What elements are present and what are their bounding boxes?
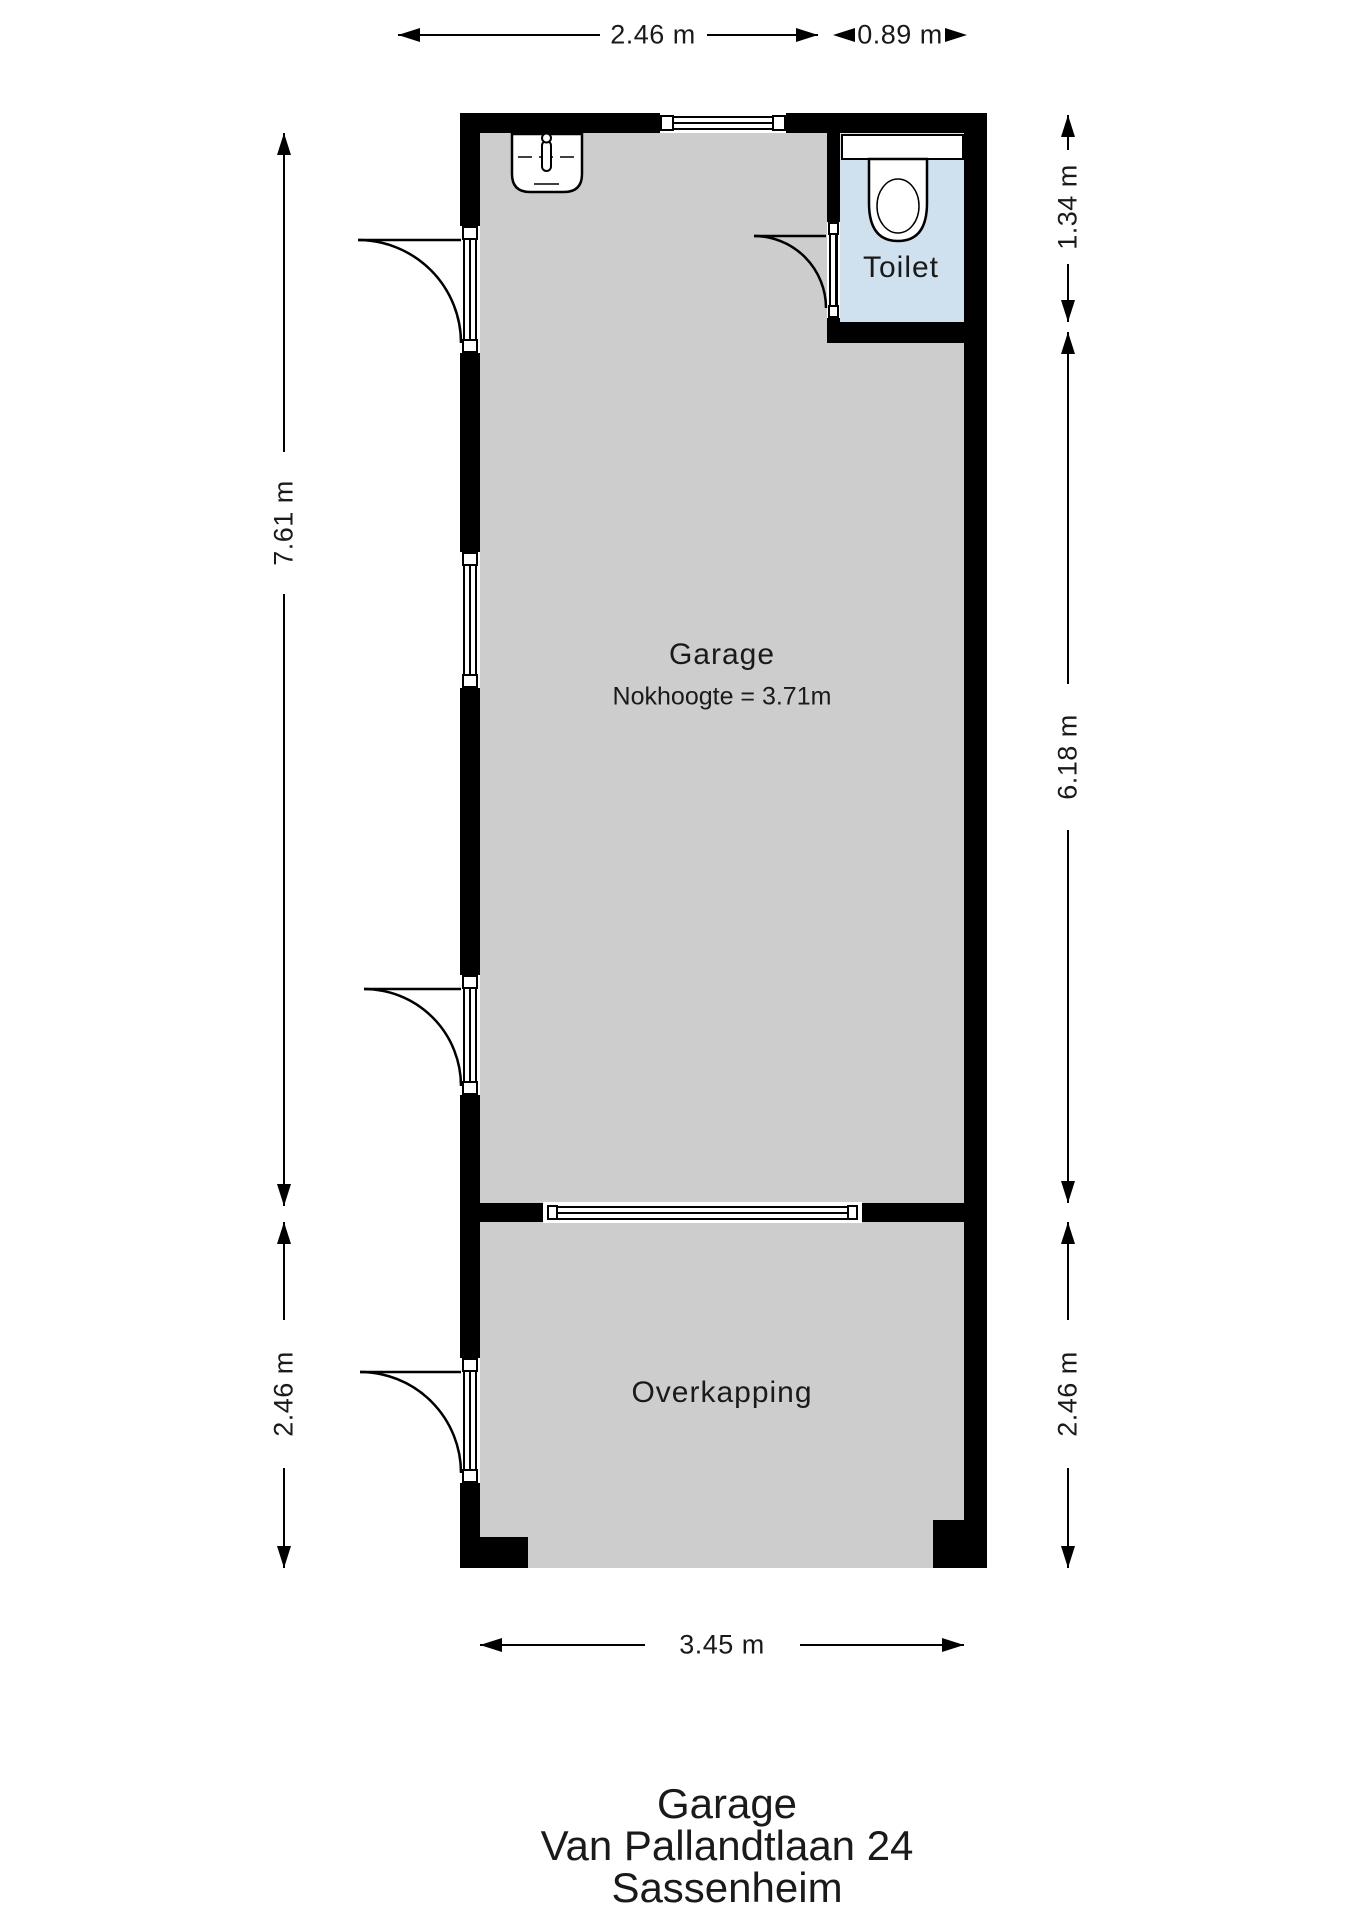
floorplan-canvas: 2.46 m 0.89 m 7.61 m 2.46 m 1.34 m 6.18 … [0,0,1358,1920]
dim-top-toilet: 0.89 m [857,20,943,51]
door-garage-lower-arc [364,989,461,1086]
window-top-jamb-left [660,115,674,131]
divider-jamb-right [847,1205,858,1220]
door-garage-upper-arc [358,240,461,343]
door-garage-upper-leaf [463,240,477,339]
wall-stub-bottom-right [933,1520,964,1568]
dim-right-garage: 6.18 m [1053,714,1084,800]
window-left-glazing [463,566,477,674]
divider-jamb-left [547,1205,558,1220]
window-left-jamb-bottom [462,674,478,688]
door-garage-lower-leaf [463,989,477,1081]
divider-slider-symbol [558,1206,847,1220]
door-garage-upper-jamb-bottom [462,339,478,353]
wall-toilet-bottom [827,322,964,343]
door-overkapping-leaf [463,1372,477,1469]
dim-right-toilet: 1.34 m [1053,164,1084,250]
door-garage-lower-jamb-top [462,975,478,989]
window-top-glazing [674,116,772,130]
title-line-3: Sassenheim [427,1867,1027,1909]
wall-divider-right [862,1203,964,1222]
title-block: Garage Van Pallandtlaan 24 Sassenheim [427,1783,1027,1909]
room-label-overkapping: Overkapping [631,1376,812,1410]
dim-left-overkapping: 2.46 m [269,1351,300,1437]
door-garage-lower-jamb-bottom [462,1081,478,1095]
window-top-jamb-right [772,115,786,131]
dim-top-garage: 2.46 m [610,20,696,51]
door-toilet-jamb-top [828,222,839,235]
dim-right-overkapping: 2.46 m [1053,1351,1084,1437]
dim-bottom-overkapping: 3.45 m [679,1630,765,1661]
door-toilet-leaf [829,235,838,305]
room-label-toilet: Toilet [863,251,939,285]
dim-left-garage: 7.61 m [269,480,300,566]
door-overkapping-jamb-bottom [462,1469,478,1483]
title-line-2: Van Pallandtlaan 24 [427,1825,1027,1867]
room-note-garage: Nokhoogte = 3.71m [613,683,832,712]
room-label-garage: Garage [669,638,775,672]
wall-stub-bottom-left [480,1537,528,1568]
door-overkapping-jamb-top [462,1358,478,1372]
door-garage-upper-jamb-top [462,226,478,240]
title-line-1: Garage [427,1783,1027,1825]
garage-floor [480,133,964,1568]
wall-right [964,113,987,1568]
door-toilet-jamb-bottom [828,305,839,318]
window-left-jamb-top [462,552,478,566]
toilet-floor [840,133,964,322]
wall-divider-left [460,1203,543,1222]
door-overkapping-arc [360,1372,461,1473]
